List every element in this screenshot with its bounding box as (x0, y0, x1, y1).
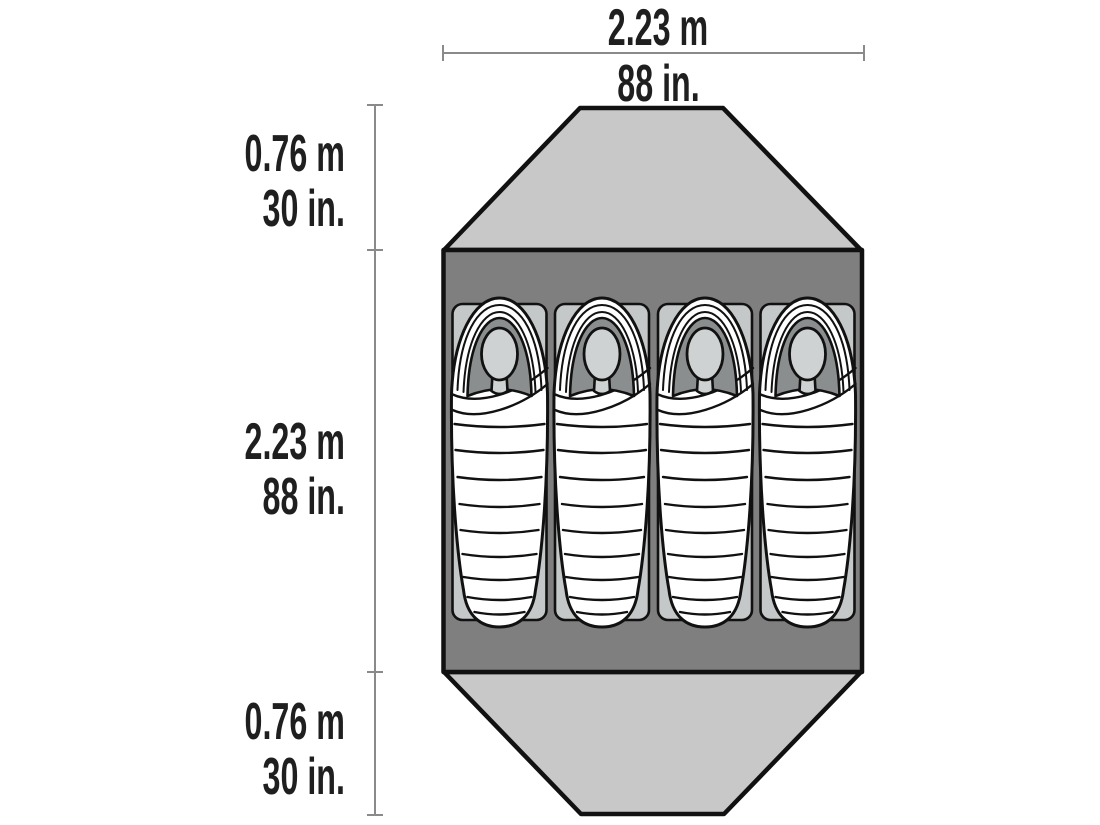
sleep-unit-4 (759, 298, 855, 627)
tent-diagram-svg (0, 0, 1100, 825)
dimension-line-length (367, 105, 383, 815)
top-vestibule-dimension-label: 0.76 m 30 in. (183, 128, 345, 236)
body-length-dimension-label: 2.23 m 88 in. (183, 416, 345, 524)
top-width-imperial-label: 88 in. (208, 58, 1100, 111)
sleep-unit-1 (451, 298, 547, 627)
sleep-unit-3 (657, 298, 753, 627)
tent-floorplan-diagram: 2.23 m 88 in. 0.76 m 30 in. 2.23 m 88 in… (0, 0, 1100, 825)
sleep-unit-2 (554, 298, 650, 627)
top-width-metric-label: 2.23 m (208, 2, 1100, 55)
bottom-vestibule-dimension-label: 0.76 m 30 in. (183, 696, 345, 804)
vestibule-top (444, 108, 861, 250)
vestibule-bottom (444, 672, 861, 814)
